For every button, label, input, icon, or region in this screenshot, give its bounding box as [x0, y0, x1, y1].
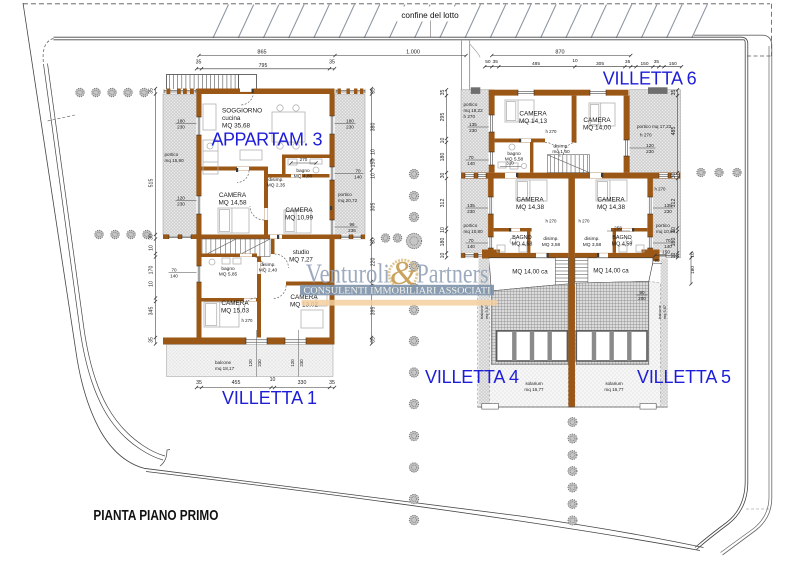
- svg-text:230: 230: [664, 209, 672, 214]
- svg-text:35: 35: [149, 88, 155, 94]
- svg-text:MQ 15,03: MQ 15,03: [221, 308, 250, 315]
- svg-text:CAMERA: CAMERA: [285, 207, 313, 214]
- svg-text:270: 270: [300, 157, 308, 162]
- svg-text:10: 10: [149, 245, 155, 251]
- svg-text:236: 236: [348, 228, 356, 233]
- svg-text:MQ 14,00 ca: MQ 14,00 ca: [512, 269, 548, 276]
- svg-text:bagno: bagno: [296, 168, 310, 174]
- svg-text:135: 135: [467, 203, 475, 208]
- svg-text:10: 10: [440, 138, 446, 144]
- svg-text:MQ 2,40: MQ 2,40: [259, 268, 278, 274]
- svg-text:10: 10: [671, 227, 677, 233]
- svg-text:MQ 4,58: MQ 4,58: [512, 242, 533, 248]
- svg-text:MQ 14,00 ca: MQ 14,00 ca: [593, 268, 629, 275]
- svg-text:PIANTA PIANO PRIMO: PIANTA PIANO PRIMO: [93, 508, 218, 524]
- svg-text:BAGNO: BAGNO: [512, 235, 531, 241]
- svg-text:120: 120: [646, 143, 654, 148]
- svg-text:330: 330: [298, 380, 307, 386]
- svg-text:mq 18,22: mq 18,22: [464, 108, 484, 113]
- svg-text:solarium: solarium: [605, 381, 623, 386]
- svg-text:170: 170: [149, 266, 155, 275]
- svg-text:MQ 14,38: MQ 14,38: [516, 204, 545, 211]
- svg-text:295: 295: [440, 113, 446, 122]
- svg-text:230: 230: [177, 125, 185, 130]
- svg-text:305: 305: [596, 61, 604, 67]
- svg-text:120: 120: [290, 359, 295, 367]
- svg-text:portico: portico: [464, 223, 478, 228]
- svg-text:h 270: h 270: [546, 219, 558, 224]
- svg-text:35: 35: [149, 337, 155, 343]
- svg-text:CAMERA: CAMERA: [583, 117, 611, 124]
- svg-text:150: 150: [640, 61, 648, 67]
- svg-text:35: 35: [329, 380, 335, 386]
- svg-text:portico: portico: [165, 152, 179, 157]
- svg-text:230: 230: [469, 128, 477, 133]
- svg-text:865: 865: [257, 50, 266, 56]
- svg-text:10: 10: [371, 173, 377, 179]
- svg-text:mq 10,80: mq 10,80: [464, 229, 484, 234]
- svg-text:mq 15,90: mq 15,90: [165, 158, 185, 163]
- svg-text:135: 135: [469, 122, 477, 127]
- svg-text:30: 30: [440, 173, 446, 179]
- svg-text:230: 230: [299, 359, 304, 367]
- svg-text:MQ 14,58: MQ 14,58: [218, 200, 247, 207]
- svg-text:35: 35: [625, 59, 631, 65]
- svg-text:10: 10: [270, 377, 276, 383]
- svg-text:140: 140: [467, 161, 475, 166]
- svg-text:180: 180: [690, 266, 696, 274]
- svg-text:135: 135: [664, 203, 672, 208]
- svg-text:portico: portico: [656, 223, 670, 228]
- svg-text:disimp.: disimp.: [268, 177, 283, 183]
- svg-text:mq 16,77: mq 16,77: [524, 387, 544, 392]
- svg-text:MQ 14,38: MQ 14,38: [597, 204, 626, 211]
- svg-text:70: 70: [468, 238, 474, 243]
- svg-text:230: 230: [646, 149, 654, 154]
- svg-text:h 270: h 270: [579, 219, 591, 224]
- svg-text:150: 150: [669, 61, 677, 67]
- svg-text:10: 10: [690, 252, 696, 258]
- svg-text:CAMERA: CAMERA: [597, 197, 625, 204]
- svg-text:h 270: h 270: [546, 129, 558, 134]
- svg-text:mq 16,77: mq 16,77: [604, 387, 624, 392]
- svg-text:disimp.: disimp.: [584, 236, 599, 242]
- svg-text:VILLETTA 5: VILLETTA 5: [637, 367, 731, 387]
- svg-text:200: 200: [638, 296, 646, 301]
- svg-text:180: 180: [346, 118, 354, 123]
- svg-text:mq 18,17: mq 18,17: [215, 366, 235, 371]
- svg-text:VILLETTA 1: VILLETTA 1: [222, 388, 317, 408]
- svg-text:50: 50: [485, 59, 491, 65]
- svg-text:140: 140: [664, 244, 672, 249]
- svg-text:BAGNO: BAGNO: [612, 235, 631, 241]
- svg-text:70: 70: [665, 238, 671, 243]
- svg-text:140: 140: [354, 175, 362, 180]
- svg-text:portico: portico: [464, 102, 478, 107]
- svg-text:mq 5,87: mq 5,87: [662, 305, 667, 319]
- svg-text:258: 258: [614, 226, 622, 231]
- svg-text:305: 305: [371, 203, 377, 212]
- svg-text:455: 455: [232, 380, 241, 386]
- svg-text:MQ 14,00: MQ 14,00: [583, 125, 612, 132]
- svg-text:CONSULENTI IMMOBILIARI ASSOCIA: CONSULENTI IMMOBILIARI ASSOCIATI: [304, 285, 491, 295]
- svg-text:bagno: bagno: [221, 266, 235, 272]
- svg-text:MQ 3,58: MQ 3,58: [583, 242, 602, 248]
- svg-text:confine del lotto: confine del lotto: [401, 11, 459, 20]
- svg-text:cucina: cucina: [222, 115, 241, 122]
- svg-text:140: 140: [467, 244, 475, 249]
- svg-text:35: 35: [196, 60, 202, 66]
- svg-text:90: 90: [654, 258, 660, 263]
- svg-text:MQ 10,99: MQ 10,99: [285, 215, 314, 222]
- svg-text:studio: studio: [293, 249, 310, 256]
- svg-text:140: 140: [170, 274, 178, 279]
- svg-text:MQ 35,68: MQ 35,68: [222, 123, 251, 130]
- svg-text:portico mq 17,23: portico mq 17,23: [637, 124, 672, 129]
- svg-text:35: 35: [654, 59, 660, 65]
- svg-text:230: 230: [467, 209, 475, 214]
- svg-text:MQ 4,86: MQ 4,86: [294, 174, 313, 180]
- svg-text:10: 10: [572, 58, 578, 64]
- svg-text:MQ 2,35: MQ 2,35: [267, 183, 286, 189]
- svg-text:VILLETTA 4: VILLETTA 4: [425, 367, 519, 387]
- svg-text:70: 70: [171, 267, 177, 272]
- svg-text:1.000: 1.000: [406, 50, 420, 56]
- svg-text:SOGGIORNO: SOGGIORNO: [222, 108, 262, 115]
- svg-text:APPARTAM. 3: APPARTAM. 3: [212, 130, 323, 150]
- svg-text:35: 35: [371, 337, 377, 343]
- svg-text:150: 150: [662, 250, 670, 255]
- svg-text:10: 10: [149, 281, 155, 287]
- svg-text:MQ 5,85: MQ 5,85: [219, 272, 238, 278]
- svg-text:35: 35: [493, 59, 499, 65]
- svg-text:30: 30: [371, 238, 377, 244]
- svg-text:70: 70: [355, 168, 361, 173]
- svg-text:MQ 4,59: MQ 4,59: [612, 242, 633, 248]
- svg-text:30: 30: [671, 173, 677, 179]
- svg-text:30: 30: [149, 234, 155, 240]
- svg-text:portico: portico: [338, 192, 352, 197]
- svg-text:310: 310: [506, 161, 514, 166]
- svg-text:230: 230: [346, 125, 354, 130]
- svg-text:Partners: Partners: [417, 259, 489, 289]
- svg-text:870: 870: [555, 50, 564, 56]
- svg-text:795: 795: [259, 63, 268, 69]
- svg-text:35: 35: [440, 90, 446, 96]
- svg-text:90: 90: [639, 290, 645, 295]
- svg-text:MQ 3,58: MQ 3,58: [542, 242, 561, 248]
- svg-text:h 270: h 270: [242, 318, 254, 323]
- svg-text:10: 10: [440, 227, 446, 233]
- svg-text:CAMERA: CAMERA: [219, 192, 247, 199]
- svg-text:mq 5,87: mq 5,87: [484, 305, 489, 319]
- svg-text:Venturoli: Venturoli: [306, 259, 390, 289]
- svg-text:150: 150: [371, 159, 377, 168]
- svg-text:120: 120: [177, 195, 185, 200]
- svg-text:515: 515: [149, 179, 155, 188]
- svg-text:h 270: h 270: [640, 133, 652, 138]
- svg-text:180: 180: [440, 153, 446, 162]
- svg-text:485: 485: [671, 127, 677, 136]
- svg-text:96: 96: [349, 222, 355, 227]
- svg-text:380: 380: [371, 123, 377, 132]
- svg-text:VILLETTA 6: VILLETTA 6: [603, 69, 697, 89]
- svg-text:CAMERA: CAMERA: [221, 300, 249, 307]
- svg-text:120: 120: [248, 359, 253, 367]
- svg-text:MQ 14,13: MQ 14,13: [519, 118, 548, 125]
- svg-text:10: 10: [371, 149, 377, 155]
- svg-text:35: 35: [671, 90, 677, 96]
- svg-text:CAMERA: CAMERA: [516, 197, 544, 204]
- svg-text:312: 312: [440, 199, 446, 208]
- svg-text:bagno: bagno: [507, 151, 521, 157]
- svg-text:mq 1,60: mq 1,60: [552, 149, 570, 155]
- svg-text:mq 20,72: mq 20,72: [338, 198, 358, 203]
- svg-text:230: 230: [257, 359, 262, 367]
- svg-text:35: 35: [196, 380, 202, 386]
- svg-text:disimp.: disimp.: [553, 144, 568, 150]
- svg-text:CAMERA: CAMERA: [519, 111, 547, 118]
- svg-text:h 270: h 270: [464, 114, 476, 119]
- svg-text:disimp.: disimp.: [543, 236, 558, 242]
- svg-text:solarium: solarium: [525, 381, 543, 386]
- svg-text:180: 180: [440, 238, 446, 247]
- svg-text:180: 180: [177, 118, 185, 123]
- svg-text:10: 10: [440, 253, 446, 259]
- svg-text:35: 35: [371, 88, 377, 94]
- svg-text:345: 345: [149, 307, 155, 316]
- svg-text:disimp.: disimp.: [260, 262, 275, 268]
- svg-text:35: 35: [329, 60, 335, 66]
- svg-text:70: 70: [468, 155, 474, 160]
- svg-text:395: 395: [371, 307, 377, 316]
- svg-text:h 270: h 270: [655, 187, 667, 192]
- svg-text:485: 485: [532, 61, 540, 67]
- svg-text:balcone: balcone: [215, 360, 232, 365]
- svg-text:230: 230: [177, 202, 185, 207]
